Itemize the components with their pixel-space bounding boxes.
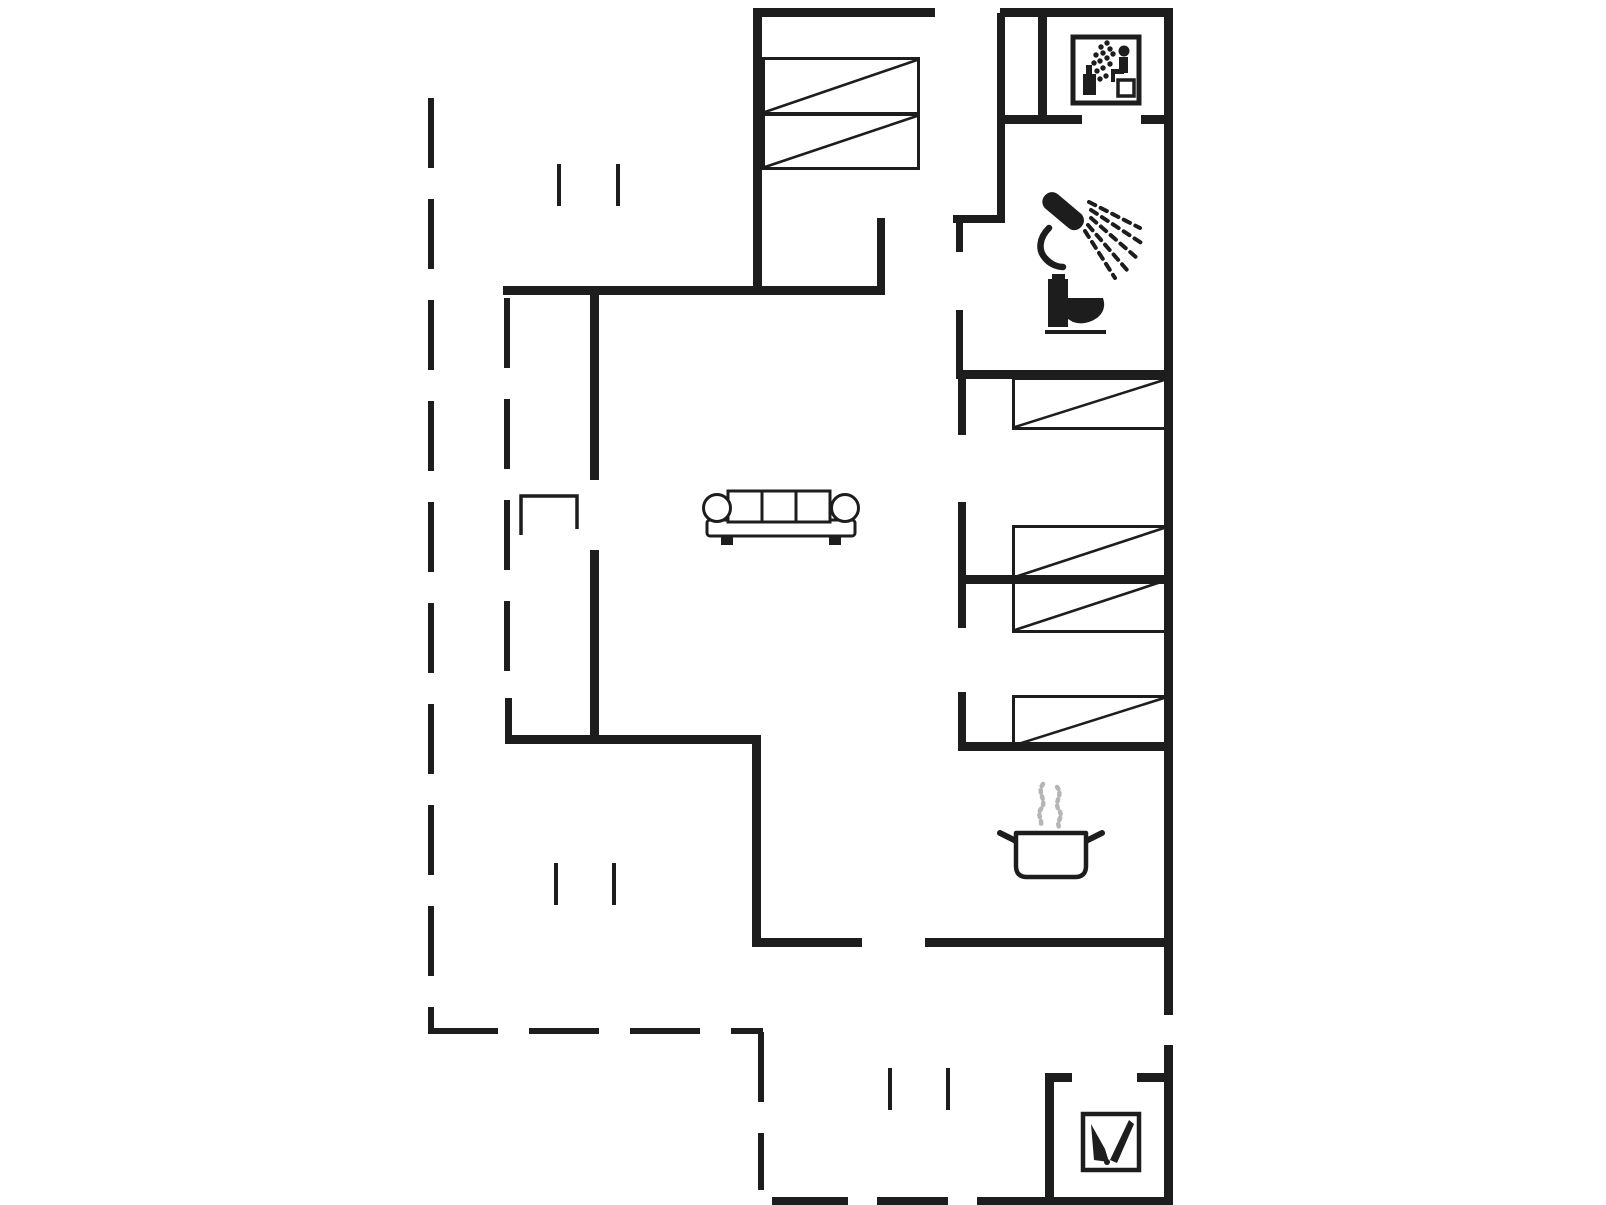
wall [755, 938, 862, 947]
wall [1164, 1045, 1173, 1205]
window-tick [612, 863, 616, 905]
wall [1137, 1073, 1173, 1082]
wall [956, 310, 963, 378]
bed-symbol [1012, 695, 1167, 748]
wall [977, 1197, 1173, 1205]
wall [1141, 115, 1173, 124]
terrace-dashed-line [428, 906, 434, 976]
wall [503, 286, 885, 295]
wall [958, 742, 1170, 751]
terrace-dashed-line [529, 1028, 599, 1034]
wall [877, 1197, 948, 1205]
terrace-dashed-line [428, 502, 434, 572]
wall [997, 115, 1082, 124]
wall [1000, 8, 1173, 17]
wall [925, 938, 1173, 947]
terrace-dashed-line [758, 1032, 764, 1102]
cooking-pot-icon [995, 780, 1107, 882]
terrace-dashed-line [630, 1028, 700, 1034]
terrace-dashed-line [428, 805, 434, 875]
wall [590, 550, 599, 744]
window-tick [946, 1068, 950, 1110]
window-tick [616, 164, 620, 206]
wall [1038, 13, 1047, 122]
terrace-dashed-line [504, 601, 510, 671]
bed-symbol [1012, 377, 1167, 430]
wall [590, 293, 599, 480]
toilet-icon [1042, 272, 1110, 338]
wall [958, 502, 966, 628]
terrace-dashed-line [428, 603, 434, 673]
wall [958, 379, 966, 435]
wall [956, 370, 1173, 379]
terrace-dashed-line [504, 399, 510, 469]
wood-stove-icon [1080, 1111, 1142, 1173]
bed-symbol [1012, 525, 1167, 580]
window-tick [554, 863, 558, 905]
wall [505, 698, 512, 738]
wall [505, 735, 761, 744]
terrace-dashed-line [428, 704, 434, 774]
terrace-dashed-line [428, 300, 434, 370]
wall [958, 575, 1167, 584]
wall [956, 223, 963, 252]
bed-symbol [762, 57, 920, 115]
wall [753, 8, 935, 17]
terrace-dashed-line [428, 199, 434, 269]
wall [752, 742, 761, 947]
wall [753, 8, 762, 295]
bed-symbol [1012, 578, 1167, 633]
wall [877, 218, 885, 295]
wall [1045, 1073, 1054, 1205]
window-tick [557, 164, 561, 206]
terrace-dashed-line [758, 1133, 764, 1190]
terrace-dashed-line [428, 98, 434, 168]
window-tick [888, 1068, 892, 1110]
terrace-dashed-line [428, 1028, 498, 1034]
side-table-symbol [518, 493, 580, 537]
terrace-dashed-line [428, 401, 434, 471]
wall [772, 1197, 848, 1205]
terrace-dashed-line [504, 500, 510, 570]
sauna-icon [1070, 34, 1142, 106]
bed-symbol [762, 113, 920, 170]
floor-plan [0, 0, 1606, 1205]
terrace-dashed-line [504, 298, 510, 368]
sofa-symbol [700, 486, 862, 548]
wall [1164, 8, 1173, 1015]
